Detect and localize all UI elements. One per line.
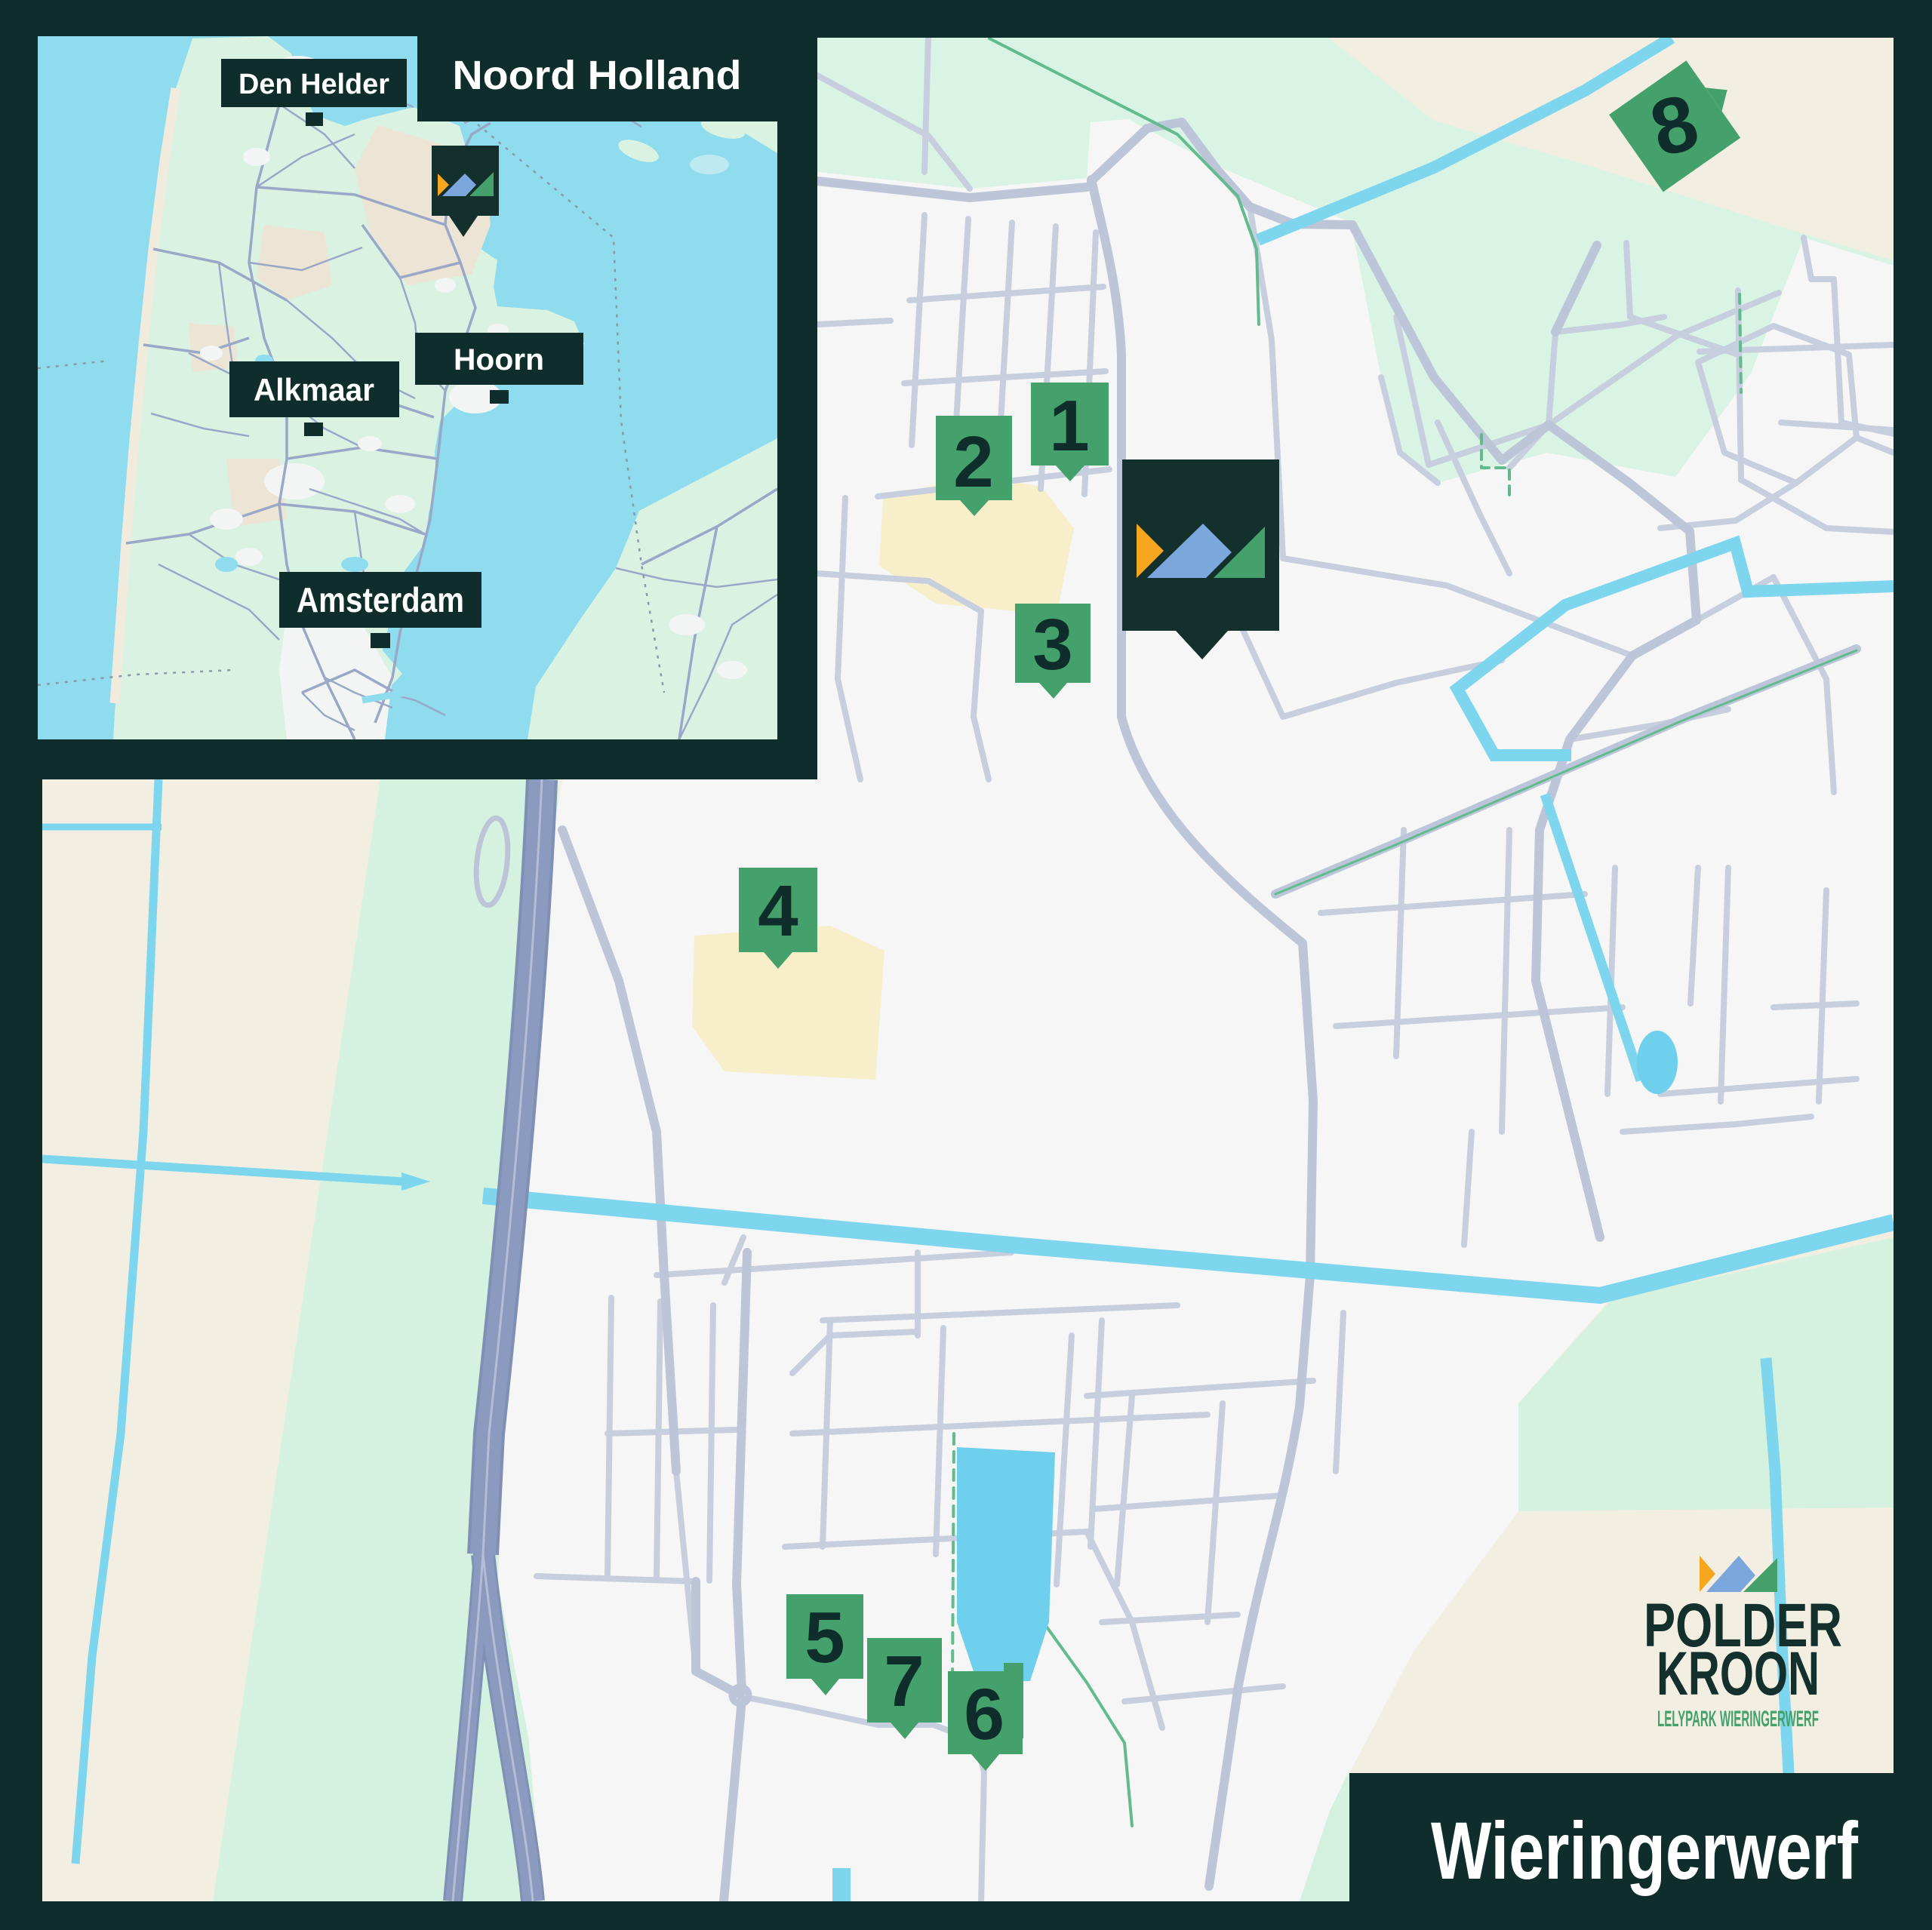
svg-text:3: 3 — [1032, 604, 1072, 685]
svg-text:6: 6 — [962, 1673, 1005, 1756]
svg-text:Alkmaar: Alkmaar — [254, 372, 374, 407]
svg-text:Noord Holland: Noord Holland — [453, 53, 742, 98]
svg-text:Den Helder: Den Helder — [238, 69, 389, 100]
svg-text:KROON: KROON — [1657, 1640, 1820, 1708]
svg-text:Amsterdam: Amsterdam — [297, 580, 464, 619]
svg-text:Wieringerwerf: Wieringerwerf — [1431, 1805, 1859, 1896]
svg-text:7: 7 — [884, 1641, 924, 1722]
svg-text:4: 4 — [758, 871, 798, 951]
svg-text:2: 2 — [953, 422, 993, 502]
svg-text:1: 1 — [1049, 386, 1089, 466]
svg-text:LELYPARK WIERINGERWERF: LELYPARK WIERINGERWERF — [1657, 1707, 1819, 1732]
svg-text:5: 5 — [804, 1597, 844, 1678]
svg-text:Hoorn: Hoorn — [454, 343, 544, 376]
